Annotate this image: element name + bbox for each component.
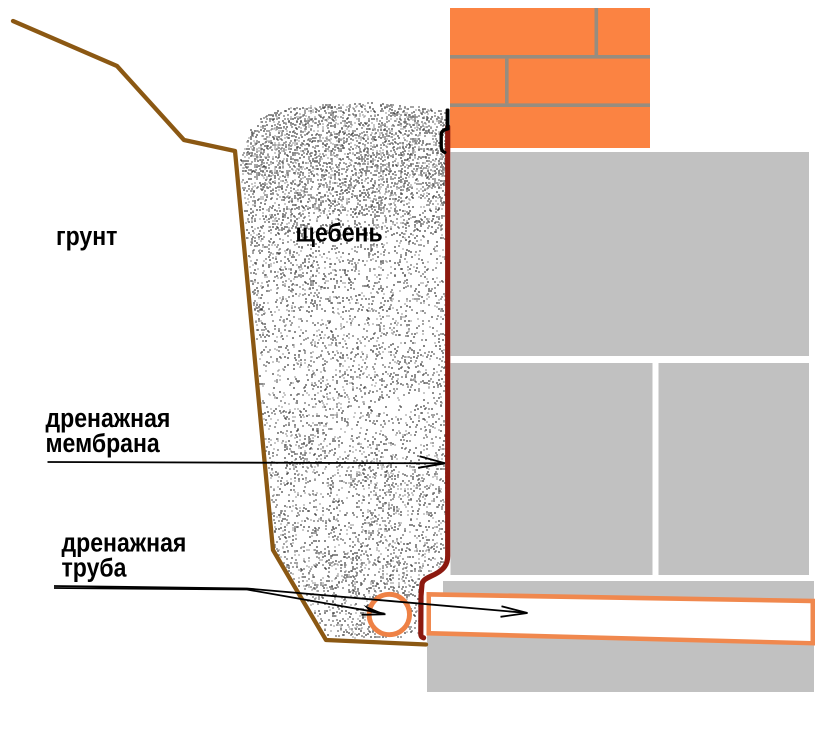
svg-text:мембрана: мембрана <box>46 430 161 458</box>
svg-text:щебень: щебень <box>296 220 383 248</box>
svg-text:грунт: грунт <box>56 223 118 251</box>
svg-text:труба: труба <box>62 554 127 582</box>
